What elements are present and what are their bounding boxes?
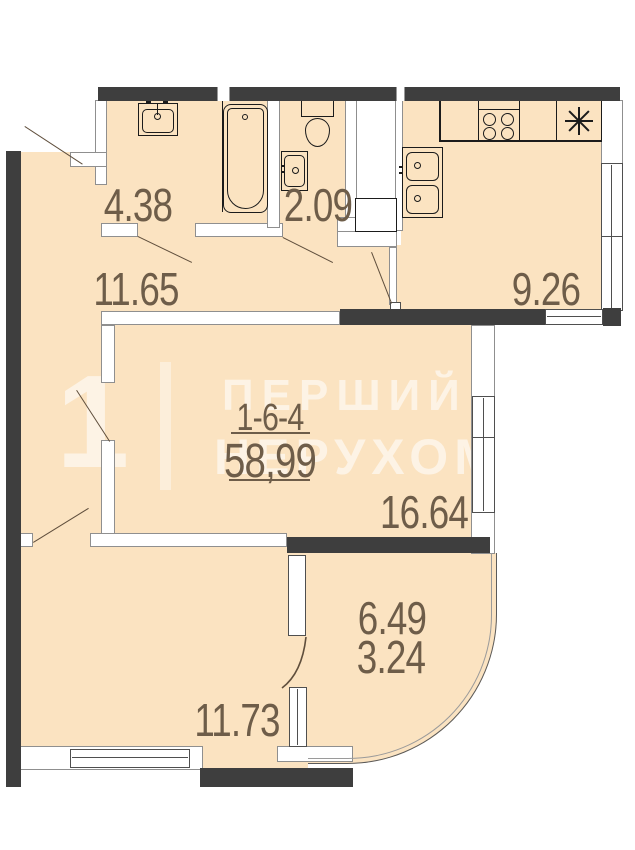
room-label-hallway: 11.65	[92, 266, 180, 312]
window-bedroom-south	[70, 749, 190, 768]
washbasin-tap	[292, 167, 299, 174]
wall-top-joint-1	[217, 87, 230, 101]
room-label-bathroom: 4.38	[94, 182, 182, 228]
wall-corridor-east	[389, 247, 397, 305]
window-living-east-tie	[473, 437, 494, 438]
wall-bedroom-bottom	[200, 768, 353, 787]
wall-shaft-south	[337, 231, 397, 247]
bath-sink-tap-right	[163, 101, 168, 104]
wall-bedroom-north	[90, 533, 287, 547]
kitchen-sink-tap-2	[399, 172, 403, 174]
washbasin-tick-1	[281, 165, 285, 167]
unit-total-area-underline	[229, 479, 310, 481]
stove-burner-3	[483, 127, 496, 140]
stove-burner-4	[501, 127, 514, 140]
window-balcony-west-mullion	[297, 689, 298, 745]
bath-sink-tap-left	[146, 101, 151, 104]
kitchen-sink-drain-1	[414, 162, 421, 169]
balcony-door-arc	[281, 635, 308, 690]
watermark-logo-bar	[160, 362, 171, 490]
floor-plan: 1 ПЕРШИЙ БА НЕРУХОМО	[0, 0, 635, 850]
bathtub-inner	[227, 108, 264, 209]
wall-living-west-lower	[101, 440, 115, 535]
bath-sink-faucet	[157, 104, 158, 115]
balcony-door	[288, 555, 306, 636]
counter-line-v	[439, 100, 441, 141]
unit-code-underline	[231, 432, 310, 434]
watermark-logo-digit: 1	[56, 356, 129, 488]
room-label-toilet: 2.09	[274, 182, 362, 228]
window-kitchen-south-mullion	[547, 316, 601, 317]
wall-top-joint-2	[396, 87, 405, 101]
room-label-living: 16.64	[380, 489, 468, 535]
room-label-kitchen: 9.26	[502, 266, 590, 312]
room-label-balcony-reduced: 3.24	[347, 634, 435, 680]
window-kitchen-east-tie	[602, 236, 622, 237]
stove-panel-line	[479, 109, 519, 110]
wall-kitchen-east-top	[601, 100, 623, 164]
kitchen-sink-bowl-1	[406, 152, 439, 181]
window-bedroom-south-mullion	[72, 757, 188, 758]
kitchen-sink-bowl-2	[406, 185, 439, 214]
wall-balcony-top	[287, 537, 490, 553]
wall-top	[98, 87, 620, 101]
stove-burner-1	[483, 113, 496, 126]
window-living-east-mullion	[483, 398, 484, 511]
room-label-bedroom: 11.73	[193, 697, 281, 743]
kitchen-sink-drain-2	[414, 195, 421, 202]
stove-burner-2	[501, 113, 514, 126]
wall-left	[6, 151, 21, 787]
wall-living-west-upper	[101, 325, 115, 383]
wall-bath-west	[95, 100, 107, 185]
bathtub-drain	[242, 114, 248, 120]
wall-corner-kitchen	[603, 308, 621, 326]
kitchen-sink-tap-1	[399, 166, 403, 168]
toilet-tank	[301, 100, 334, 117]
washbasin-tick-2	[281, 171, 285, 173]
